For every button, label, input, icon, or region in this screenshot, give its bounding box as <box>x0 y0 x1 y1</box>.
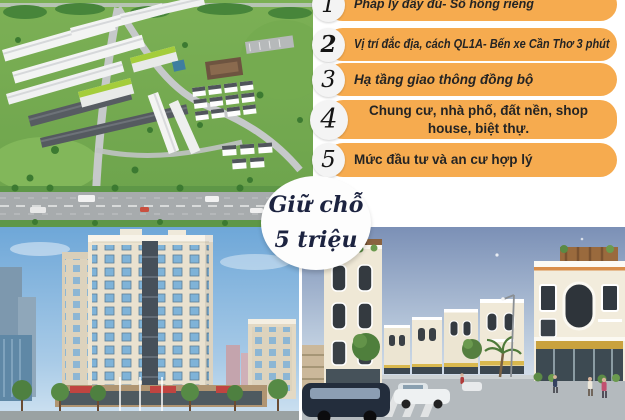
feature-text-2: Vị trí đắc địa, cách QL1A- Bến xe Cần Th… <box>354 37 610 51</box>
promo-poster: 1 Pháp lý đầy đủ- Sổ hồng riêng 2 Vị trí… <box>0 0 625 420</box>
feature-number-1: 1 <box>321 0 336 18</box>
feature-number-badge-5: 5 <box>312 143 345 177</box>
feature-banner-3: 3 Hạ tầng giao thông đồng bộ <box>326 63 617 96</box>
feature-number-4: 4 <box>320 104 337 135</box>
feature-banner-5: 5 Mức đầu tư và an cư hợp lý <box>326 143 617 177</box>
apartment-tower-art <box>0 227 299 420</box>
reservation-badge-line1: Giữ chỗ <box>269 188 364 223</box>
feature-text-4: Chung cư, nhà phố, đất nền, shop house, … <box>350 102 607 137</box>
feature-text-5: Mức đầu tư và an cư hợp lý <box>354 152 532 168</box>
feature-number-badge-3: 3 <box>312 63 345 97</box>
aerial-masterplan-photo <box>0 0 313 227</box>
feature-number-5: 5 <box>321 147 336 173</box>
apartment-tower-photo <box>0 227 299 420</box>
aerial-masterplan-art <box>0 0 313 227</box>
feature-number-badge-1: 1 <box>312 0 345 22</box>
feature-number-2: 2 <box>320 31 336 58</box>
feature-banner-1: 1 Pháp lý đầy đủ- Sổ hồng riêng <box>326 0 617 21</box>
feature-text-1: Pháp lý đầy đủ- Sổ hồng riêng <box>354 0 534 12</box>
feature-number-badge-2: 2 <box>312 28 345 62</box>
reservation-badge-line2: 5 triệu <box>274 223 357 258</box>
feature-number-badge-4: 4 <box>310 100 348 140</box>
reservation-badge: Giữ chỗ 5 triệu <box>261 176 371 270</box>
feature-number-3: 3 <box>321 67 336 93</box>
feature-text-3: Hạ tầng giao thông đồng bộ <box>354 72 533 88</box>
feature-banner-2: 2 Vị trí đắc địa, cách QL1A- Bến xe Cần … <box>326 28 617 61</box>
feature-banner-4: 4 Chung cư, nhà phố, đất nền, shop house… <box>326 100 617 139</box>
